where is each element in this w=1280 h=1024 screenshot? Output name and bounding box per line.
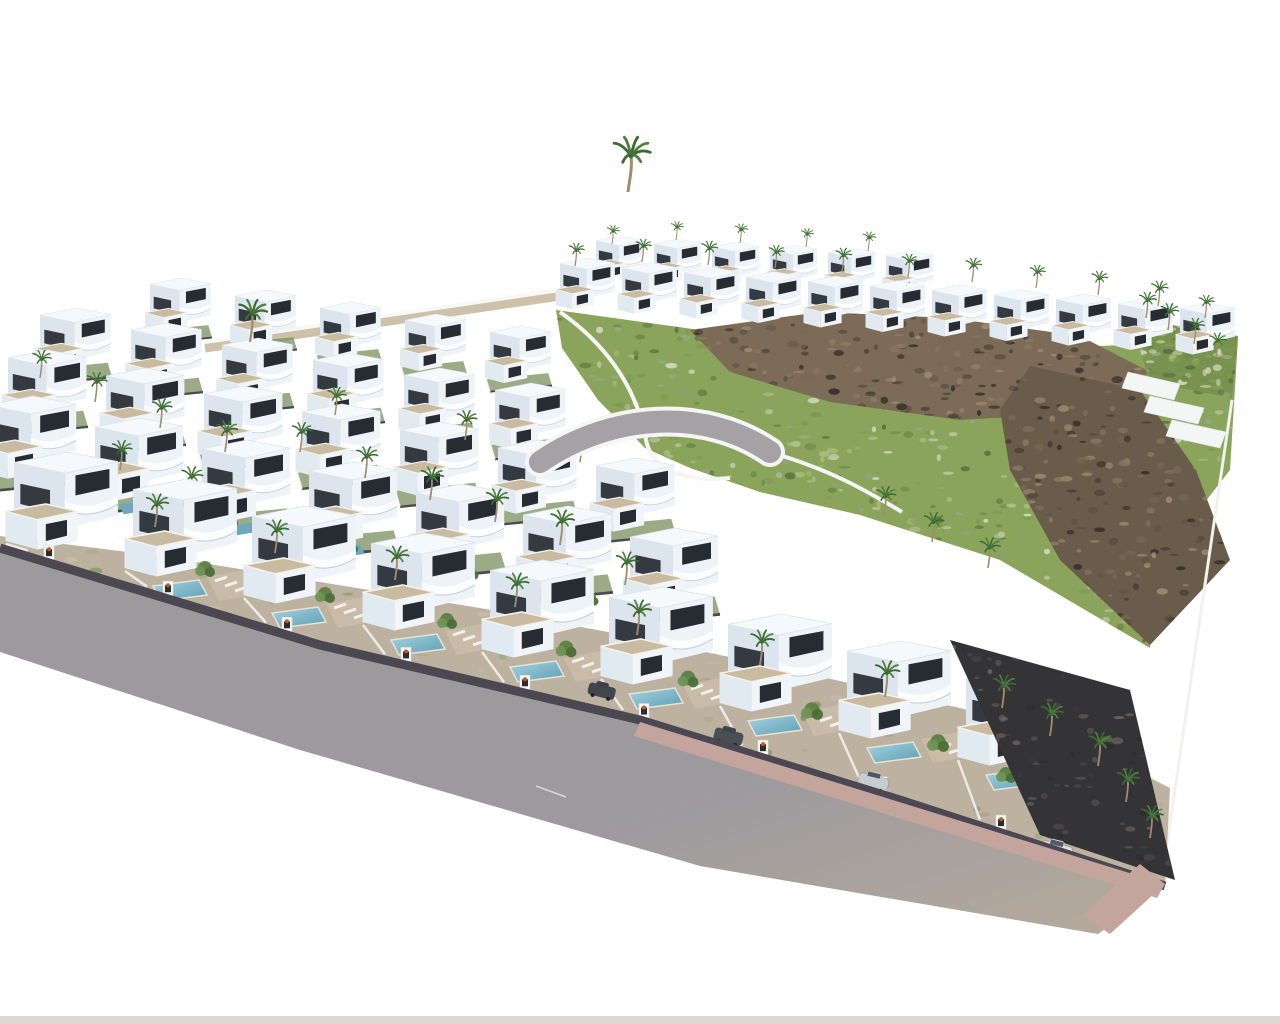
image-bottom-edge <box>0 1016 1280 1024</box>
aerial-development-render <box>0 0 1280 1024</box>
render-svg <box>0 0 1280 1024</box>
